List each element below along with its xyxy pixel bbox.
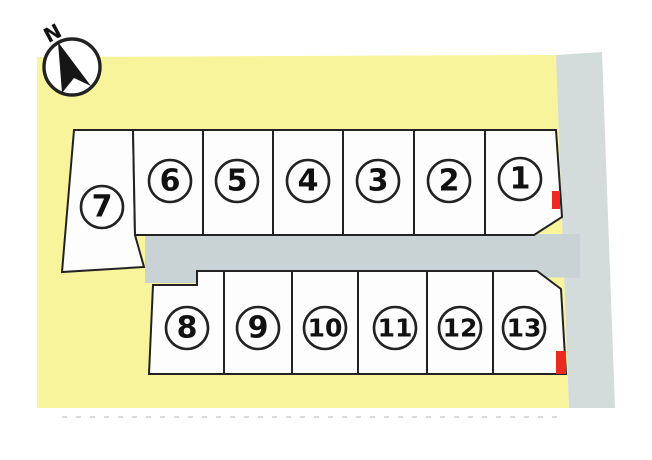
plot-9-number: 9 (248, 311, 269, 346)
plot-2-number: 2 (439, 164, 460, 199)
plot-1-number: 1 (510, 162, 531, 197)
red-marker-plot-13 (556, 351, 566, 374)
plot-10-number: 10 (308, 314, 343, 343)
plot-5-number: 5 (227, 164, 248, 199)
plot-7-number: 7 (92, 190, 113, 225)
site-plan-canvas: 76543218910111213 N (0, 0, 652, 460)
plot-13-number: 13 (507, 314, 542, 343)
site-plan: 76543218910111213 N (0, 0, 652, 460)
plot-12-number: 12 (443, 314, 478, 343)
plot-11-number: 11 (378, 314, 413, 343)
plot-4-number: 4 (298, 164, 319, 199)
compass: N (40, 19, 100, 95)
plot-6-number: 6 (160, 164, 181, 199)
plot-3-number: 3 (368, 164, 389, 199)
red-marker-plot-1 (552, 191, 560, 209)
plot-8-number: 8 (177, 311, 198, 346)
